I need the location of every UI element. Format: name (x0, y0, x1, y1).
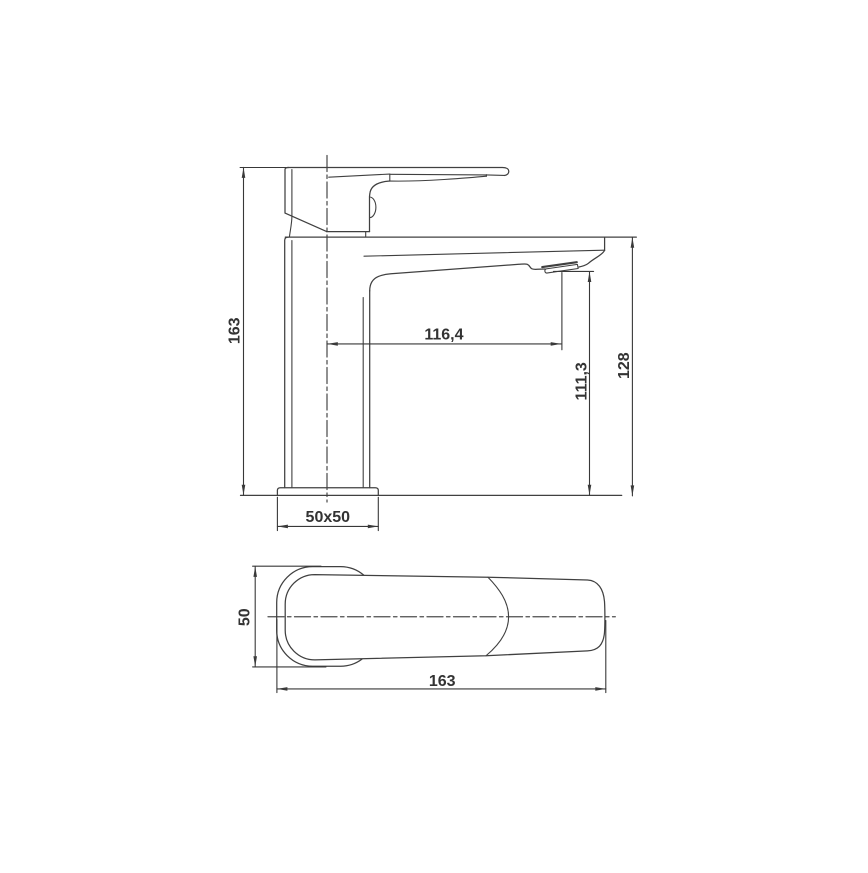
svg-text:116,4: 116,4 (424, 327, 463, 344)
svg-text:111,3: 111,3 (574, 362, 591, 400)
svg-text:50x50: 50x50 (306, 509, 351, 526)
svg-text:50: 50 (237, 608, 254, 626)
svg-text:163: 163 (226, 317, 243, 344)
svg-text:163: 163 (429, 673, 456, 690)
svg-text:128: 128 (616, 352, 633, 379)
